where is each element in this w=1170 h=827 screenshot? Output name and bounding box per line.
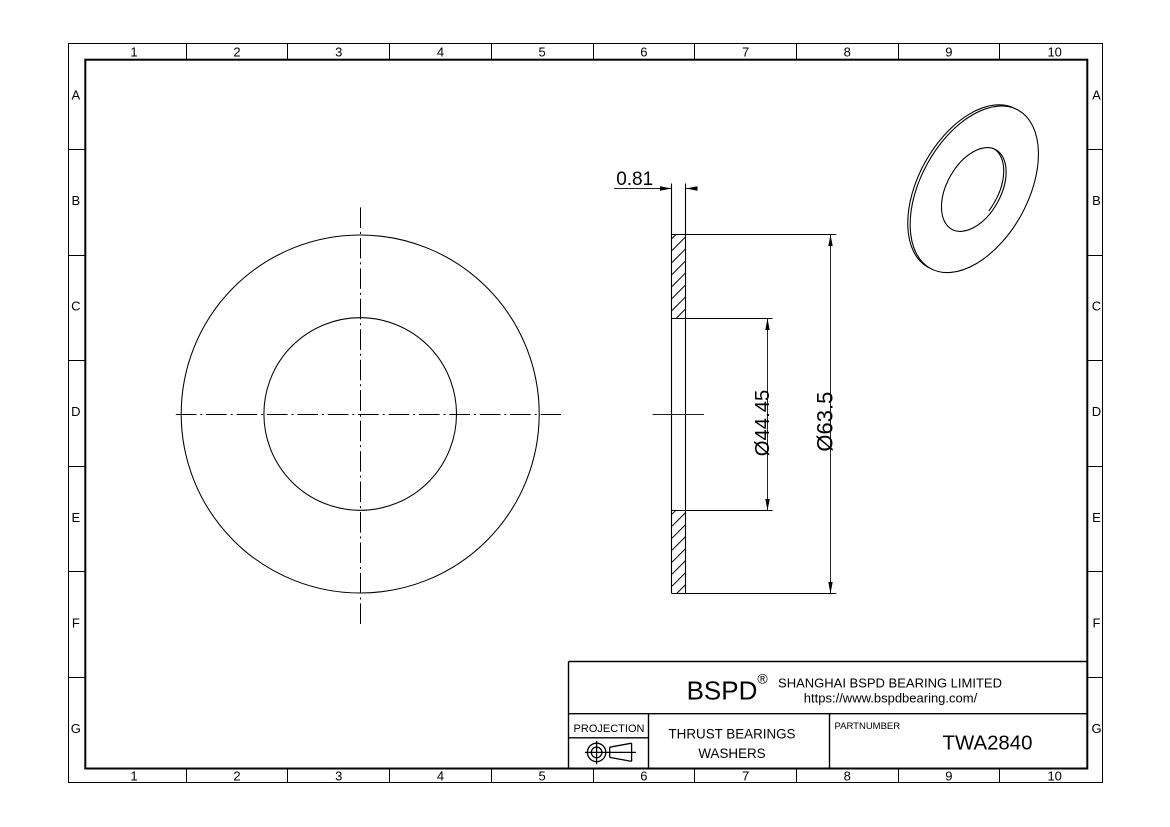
svg-text:G: G	[1091, 721, 1101, 736]
svg-text:3: 3	[335, 44, 342, 59]
svg-text:1: 1	[130, 769, 137, 784]
svg-text:1: 1	[130, 44, 137, 59]
svg-text:BSPD: BSPD	[687, 676, 758, 706]
svg-text:7: 7	[742, 769, 749, 784]
svg-text:10: 10	[1047, 44, 1061, 59]
svg-text:3: 3	[335, 769, 342, 784]
svg-text:F: F	[1093, 615, 1101, 630]
svg-text:A: A	[71, 88, 80, 103]
svg-text:C: C	[71, 299, 80, 314]
svg-text:B: B	[71, 193, 80, 208]
svg-text:D: D	[71, 404, 80, 419]
svg-text:8: 8	[844, 769, 851, 784]
svg-text:Ø44.45: Ø44.45	[752, 390, 774, 457]
svg-text:4: 4	[437, 44, 444, 59]
svg-text:THRUST BEARINGS: THRUST BEARINGS	[669, 726, 796, 741]
svg-text:SHANGHAI BSPD BEARING LIMITED: SHANGHAI BSPD BEARING LIMITED	[778, 676, 1002, 691]
svg-text:WASHERS: WASHERS	[698, 746, 765, 761]
svg-text:5: 5	[538, 769, 545, 784]
svg-text:4: 4	[437, 769, 444, 784]
svg-text:9: 9	[945, 769, 952, 784]
svg-text:B: B	[1092, 193, 1101, 208]
svg-text:PARTNUMBER: PARTNUMBER	[835, 721, 901, 732]
svg-text:2: 2	[233, 44, 240, 59]
svg-text:A: A	[1092, 88, 1101, 103]
svg-text:G: G	[71, 721, 81, 736]
svg-text:7: 7	[742, 44, 749, 59]
svg-text:C: C	[1092, 299, 1101, 314]
svg-text:TWA2840: TWA2840	[943, 733, 1033, 755]
svg-text:D: D	[1092, 404, 1101, 419]
svg-text:E: E	[71, 510, 80, 525]
svg-text:0.81: 0.81	[616, 169, 653, 190]
svg-text:F: F	[72, 615, 80, 630]
svg-text:E: E	[1092, 510, 1101, 525]
svg-text:https://www.bspdbearing.com/: https://www.bspdbearing.com/	[804, 691, 978, 706]
svg-text:8: 8	[844, 44, 851, 59]
svg-text:6: 6	[640, 769, 647, 784]
svg-text:®: ®	[757, 671, 768, 687]
svg-text:PROJECTION: PROJECTION	[574, 723, 645, 735]
svg-text:10: 10	[1047, 769, 1061, 784]
svg-text:6: 6	[640, 44, 647, 59]
svg-text:Ø63.5: Ø63.5	[813, 392, 838, 452]
svg-text:9: 9	[945, 44, 952, 59]
svg-text:5: 5	[538, 44, 545, 59]
svg-text:2: 2	[233, 769, 240, 784]
